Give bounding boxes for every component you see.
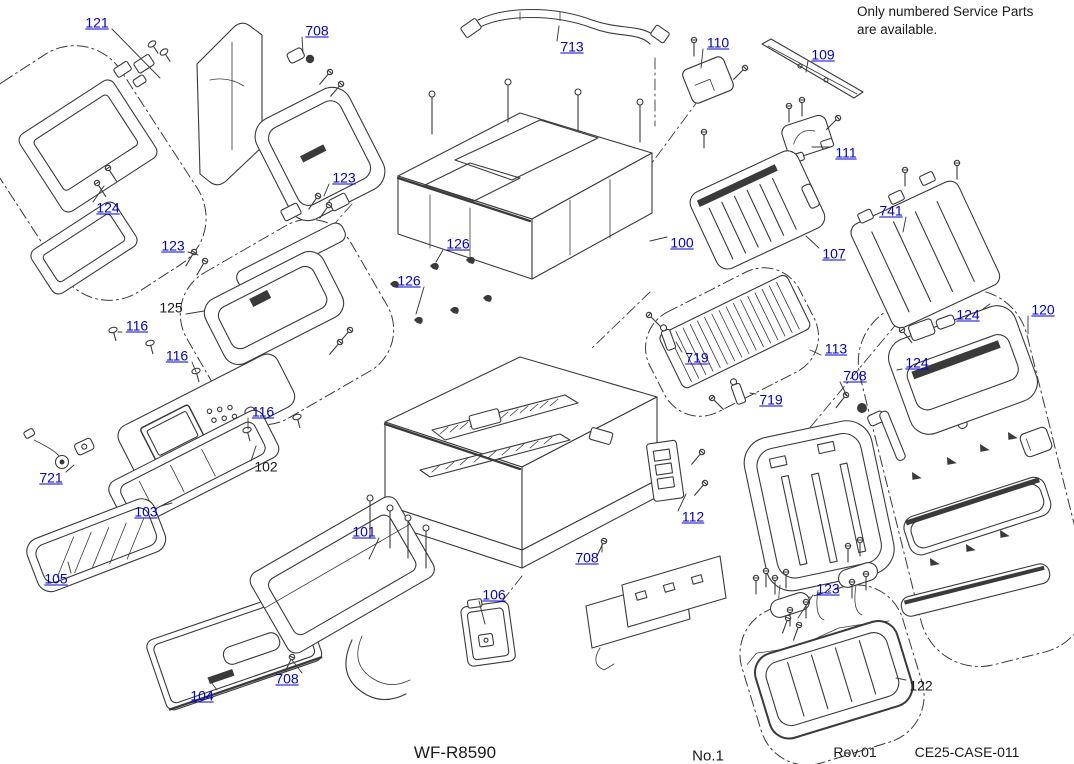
part-duct-and-corner-panel bbox=[197, 23, 392, 227]
part-callout-109[interactable]: 109 bbox=[811, 48, 834, 63]
part-right-cover-set bbox=[879, 291, 1054, 618]
part-callout-106[interactable]: 106 bbox=[482, 588, 505, 603]
part-callout-101[interactable]: 101 bbox=[352, 525, 375, 540]
service-note-line1: Only numbered Service Parts bbox=[857, 3, 1033, 21]
part-callout-124[interactable]: 124 bbox=[96, 201, 119, 216]
part-callout-110[interactable]: 110 bbox=[707, 36, 729, 51]
part-callout-112[interactable]: 112 bbox=[682, 510, 704, 525]
part-callout-122: 122 bbox=[909, 679, 932, 694]
part-callout-721[interactable]: 721 bbox=[39, 471, 62, 486]
part-callout-123[interactable]: 123 bbox=[161, 239, 184, 254]
part-ink-cover-125 bbox=[199, 220, 349, 370]
part-callout-719[interactable]: 719 bbox=[685, 351, 708, 366]
part-callout-121[interactable]: 121 bbox=[85, 16, 108, 31]
part-callout-126[interactable]: 126 bbox=[397, 274, 420, 289]
sheet-number: No.1 bbox=[692, 748, 724, 764]
part-callout-111[interactable]: 111 bbox=[835, 146, 856, 161]
part-upper-chassis bbox=[398, 113, 652, 279]
part-callout-124[interactable]: 124 bbox=[956, 308, 979, 323]
part-callout-125: 125 bbox=[159, 301, 182, 316]
part-callout-102: 102 bbox=[254, 460, 277, 475]
part-callout-713[interactable]: 713 bbox=[560, 40, 583, 55]
part-callout-116[interactable]: 116 bbox=[126, 319, 148, 334]
service-note: Only numbered Service Parts are availabl… bbox=[857, 3, 1033, 39]
part-callout-107[interactable]: 107 bbox=[822, 247, 845, 262]
part-callout-103[interactable]: 103 bbox=[134, 505, 157, 520]
part-small-cover-106 bbox=[459, 595, 516, 667]
part-callout-123[interactable]: 123 bbox=[332, 171, 355, 186]
part-callout-708[interactable]: 708 bbox=[305, 24, 328, 39]
part-callout-708[interactable]: 708 bbox=[575, 551, 598, 566]
part-sensor-721 bbox=[23, 428, 95, 469]
part-bottom-bin-122 bbox=[745, 612, 917, 744]
part-callout-708[interactable]: 708 bbox=[275, 672, 298, 687]
service-note-line2: are available. bbox=[857, 21, 1033, 39]
part-callout-113[interactable]: 113 bbox=[825, 342, 847, 357]
part-callout-124[interactable]: 124 bbox=[905, 356, 928, 371]
part-callout-741[interactable]: 741 bbox=[879, 204, 902, 219]
part-callout-126[interactable]: 126 bbox=[446, 237, 469, 252]
part-callout-104[interactable]: 104 bbox=[190, 689, 213, 704]
exploded-diagram-sketch bbox=[0, 0, 1074, 764]
part-callout-116[interactable]: 116 bbox=[252, 405, 274, 420]
document-code: CE25-CASE-011 bbox=[915, 744, 1020, 760]
part-left-side-covers bbox=[16, 49, 160, 297]
model-number: WF-R8590 bbox=[414, 743, 496, 763]
part-callout-719[interactable]: 719 bbox=[759, 393, 782, 408]
part-callout-100[interactable]: 100 bbox=[670, 236, 693, 251]
exploded-parts-diagram-page: 1217087131101091111231231261261001077411… bbox=[0, 0, 1074, 764]
part-callout-105[interactable]: 105 bbox=[44, 572, 67, 587]
revision-label: Rev.01 bbox=[833, 744, 876, 760]
part-callout-708[interactable]: 708 bbox=[843, 369, 866, 384]
part-callout-120[interactable]: 120 bbox=[1031, 303, 1054, 318]
part-callout-116[interactable]: 116 bbox=[166, 349, 188, 364]
part-callout-123[interactable]: 123 bbox=[816, 582, 839, 597]
